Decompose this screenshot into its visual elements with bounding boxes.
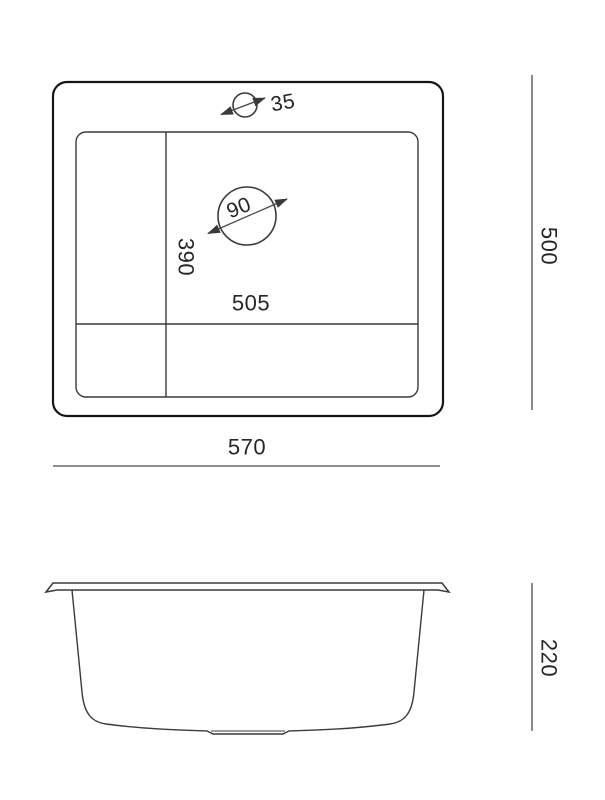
drain-diameter-label: 90 xyxy=(223,193,254,223)
overall-depth-label: 500 xyxy=(537,227,562,265)
drawing-svg: 35 90 390 505 570 500 220 xyxy=(0,0,605,800)
dimension-labels: 35 90 390 505 570 500 220 xyxy=(174,90,562,678)
dimension-lines xyxy=(53,75,532,731)
sink-technical-drawing: 35 90 390 505 570 500 220 xyxy=(0,0,605,800)
top-view-inner xyxy=(76,93,418,397)
faucet-diameter-label: 35 xyxy=(269,90,297,117)
sink-rim-profile xyxy=(46,583,449,592)
faucet-diameter-line xyxy=(221,98,265,115)
basin-depth-label: 390 xyxy=(174,238,199,276)
overall-width-label: 570 xyxy=(228,435,266,460)
basin-width-label: 505 xyxy=(232,291,270,316)
sink-bowl-profile xyxy=(72,590,424,734)
basin-inner-edge xyxy=(76,132,418,397)
bowl-height-label: 220 xyxy=(537,639,562,677)
side-view xyxy=(46,583,449,734)
